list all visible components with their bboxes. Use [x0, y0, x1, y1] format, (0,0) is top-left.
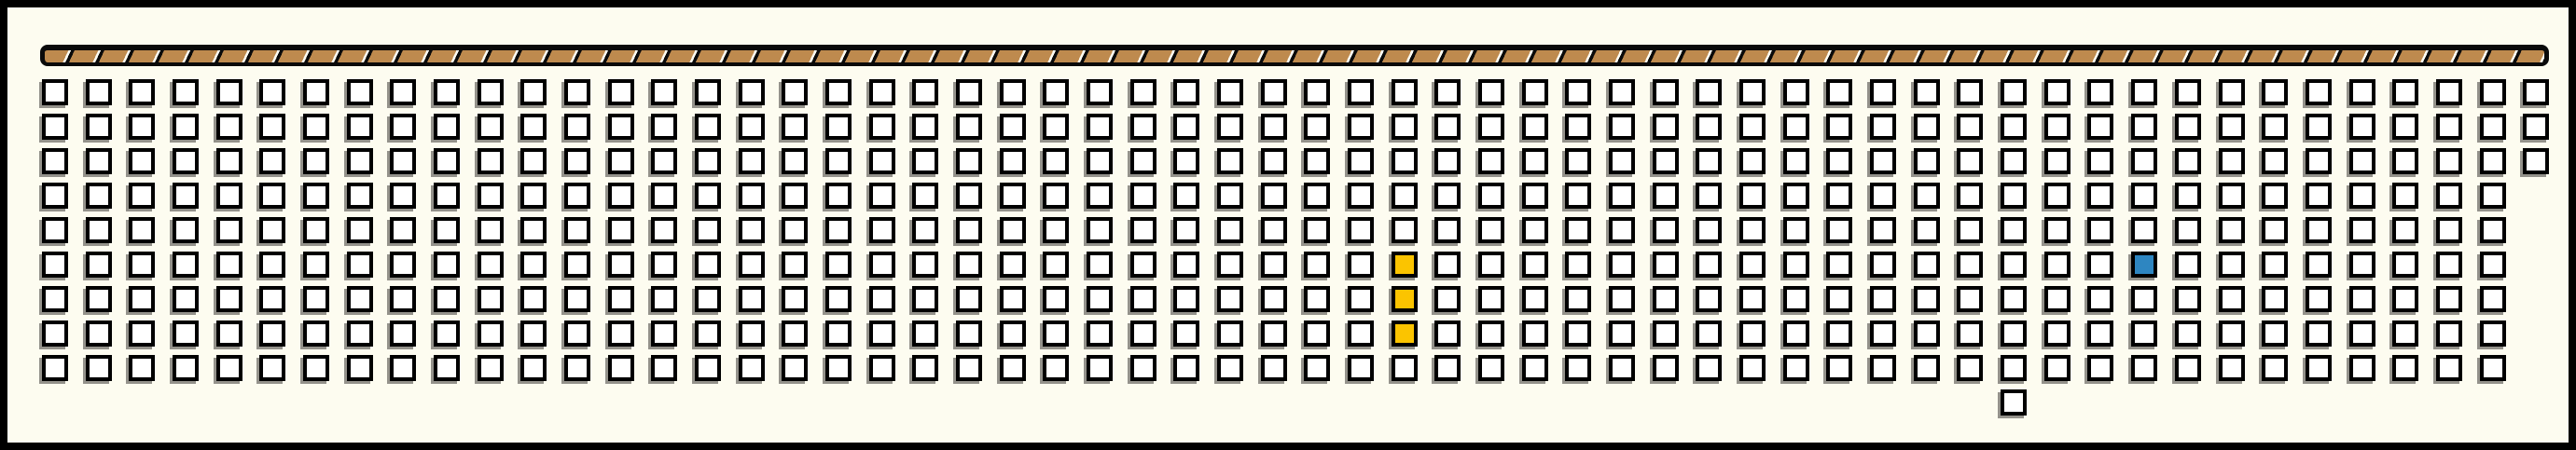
grid-cell[interactable]: [1783, 217, 1809, 243]
grid-cell[interactable]: [695, 148, 721, 174]
grid-cell[interactable]: [1217, 148, 1243, 174]
grid-cell[interactable]: [1434, 183, 1461, 209]
grid-cell[interactable]: [739, 114, 765, 140]
grid-cell[interactable]: [1739, 148, 1766, 174]
grid-cell-highlighted-blue[interactable]: [2131, 252, 2157, 278]
grid-cell[interactable]: [259, 183, 285, 209]
grid-cell[interactable]: [1478, 355, 1504, 381]
grid-cell[interactable]: [129, 355, 155, 381]
grid-cell[interactable]: [390, 217, 416, 243]
grid-cell[interactable]: [1304, 355, 1330, 381]
grid-cell[interactable]: [608, 217, 634, 243]
grid-cell[interactable]: [2306, 252, 2332, 278]
grid-cell[interactable]: [1565, 355, 1591, 381]
grid-cell-selected-yellow[interactable]: [1392, 286, 1418, 312]
grid-cell[interactable]: [2001, 217, 2027, 243]
grid-cell[interactable]: [2480, 183, 2506, 209]
grid-cell[interactable]: [956, 217, 982, 243]
grid-cell[interactable]: [1261, 252, 1287, 278]
grid-cell[interactable]: [1696, 183, 1722, 209]
grid-cell[interactable]: [2262, 286, 2288, 312]
grid-cell[interactable]: [1826, 320, 1852, 347]
grid-cell[interactable]: [2306, 114, 2332, 140]
grid-cell[interactable]: [2480, 217, 2506, 243]
grid-cell[interactable]: [2436, 183, 2462, 209]
grid-cell[interactable]: [1609, 114, 1635, 140]
grid-cell[interactable]: [1565, 286, 1591, 312]
grid-cell[interactable]: [1000, 252, 1026, 278]
grid-cell[interactable]: [1826, 355, 1852, 381]
grid-cell[interactable]: [1434, 114, 1461, 140]
grid-cell[interactable]: [520, 217, 547, 243]
grid-cell[interactable]: [2044, 79, 2070, 105]
grid-cell[interactable]: [869, 355, 895, 381]
grid-cell[interactable]: [1957, 217, 1983, 243]
grid-cell[interactable]: [1870, 286, 1896, 312]
grid-cell[interactable]: [2131, 183, 2157, 209]
grid-cell[interactable]: [1348, 183, 1374, 209]
grid-cell[interactable]: [434, 286, 460, 312]
grid-cell[interactable]: [825, 148, 852, 174]
grid-cell[interactable]: [1870, 217, 1896, 243]
grid-cell[interactable]: [869, 286, 895, 312]
grid-cell[interactable]: [42, 148, 68, 174]
grid-cell[interactable]: [2306, 355, 2332, 381]
grid-cell[interactable]: [1957, 286, 1983, 312]
grid-cell[interactable]: [2392, 148, 2418, 174]
grid-cell[interactable]: [1696, 355, 1722, 381]
grid-cell[interactable]: [1434, 217, 1461, 243]
grid-cell[interactable]: [1478, 217, 1504, 243]
grid-cell[interactable]: [1565, 148, 1591, 174]
grid-cell[interactable]: [1826, 286, 1852, 312]
grid-cell[interactable]: [2175, 217, 2201, 243]
grid-cell[interactable]: [1130, 320, 1156, 347]
grid-cell[interactable]: [2262, 183, 2288, 209]
grid-cell[interactable]: [956, 183, 982, 209]
grid-cell[interactable]: [1783, 355, 1809, 381]
grid-cell[interactable]: [2262, 217, 2288, 243]
grid-cell[interactable]: [2436, 320, 2462, 347]
grid-cell[interactable]: [347, 114, 373, 140]
grid-cell[interactable]: [1348, 355, 1374, 381]
grid-cell[interactable]: [2087, 79, 2113, 105]
grid-cell[interactable]: [2349, 320, 2375, 347]
grid-cell[interactable]: [1609, 355, 1635, 381]
grid-cell[interactable]: [1304, 252, 1330, 278]
grid-cell[interactable]: [2349, 286, 2375, 312]
grid-cell[interactable]: [782, 79, 808, 105]
grid-cell[interactable]: [1217, 183, 1243, 209]
grid-cell[interactable]: [347, 355, 373, 381]
grid-cell[interactable]: [912, 217, 938, 243]
grid-cell[interactable]: [869, 79, 895, 105]
grid-cell[interactable]: [1130, 183, 1156, 209]
grid-cell[interactable]: [608, 114, 634, 140]
grid-cell[interactable]: [739, 217, 765, 243]
grid-cell[interactable]: [1130, 217, 1156, 243]
grid-cell[interactable]: [782, 183, 808, 209]
grid-cell[interactable]: [956, 148, 982, 174]
grid-cell[interactable]: [1522, 252, 1548, 278]
grid-cell[interactable]: [1653, 252, 1679, 278]
grid-cell[interactable]: [1304, 114, 1330, 140]
grid-cell[interactable]: [1957, 114, 1983, 140]
grid-cell[interactable]: [129, 148, 155, 174]
grid-cell[interactable]: [303, 355, 329, 381]
grid-cell[interactable]: [2392, 79, 2418, 105]
grid-cell[interactable]: [173, 320, 199, 347]
grid-cell[interactable]: [1130, 355, 1156, 381]
grid-cell[interactable]: [1261, 79, 1287, 105]
grid-cell[interactable]: [1304, 217, 1330, 243]
grid-cell[interactable]: [1739, 217, 1766, 243]
grid-cell[interactable]: [1914, 183, 1940, 209]
grid-cell[interactable]: [216, 183, 242, 209]
grid-cell[interactable]: [739, 355, 765, 381]
grid-cell[interactable]: [1173, 217, 1199, 243]
grid-cell[interactable]: [2087, 320, 2113, 347]
grid-cell[interactable]: [86, 217, 112, 243]
grid-cell[interactable]: [1522, 286, 1548, 312]
grid-cell[interactable]: [1087, 286, 1113, 312]
grid-cell[interactable]: [2001, 389, 2027, 416]
grid-cell[interactable]: [1348, 217, 1374, 243]
grid-cell[interactable]: [1653, 217, 1679, 243]
grid-cell[interactable]: [1739, 183, 1766, 209]
grid-cell[interactable]: [86, 114, 112, 140]
grid-cell[interactable]: [216, 320, 242, 347]
grid-cell[interactable]: [608, 320, 634, 347]
grid-cell[interactable]: [1957, 355, 1983, 381]
grid-cell[interactable]: [1304, 320, 1330, 347]
grid-cell[interactable]: [303, 286, 329, 312]
grid-cell[interactable]: [1217, 79, 1243, 105]
grid-cell[interactable]: [695, 183, 721, 209]
grid-cell[interactable]: [2480, 114, 2506, 140]
grid-cell[interactable]: [42, 114, 68, 140]
grid-cell[interactable]: [1043, 320, 1069, 347]
grid-cell[interactable]: [434, 355, 460, 381]
grid-cell[interactable]: [390, 148, 416, 174]
grid-cell[interactable]: [869, 148, 895, 174]
grid-cell[interactable]: [129, 320, 155, 347]
grid-cell[interactable]: [2306, 286, 2332, 312]
grid-cell[interactable]: [478, 183, 504, 209]
grid-cell[interactable]: [1478, 252, 1504, 278]
grid-cell[interactable]: [651, 286, 677, 312]
grid-cell[interactable]: [1478, 148, 1504, 174]
grid-cell[interactable]: [956, 320, 982, 347]
grid-cell[interactable]: [956, 355, 982, 381]
grid-cell[interactable]: [1914, 286, 1940, 312]
grid-cell-selected-yellow[interactable]: [1392, 252, 1418, 278]
grid-cell[interactable]: [1653, 355, 1679, 381]
grid-cell[interactable]: [1522, 79, 1548, 105]
grid-cell[interactable]: [1043, 217, 1069, 243]
grid-cell[interactable]: [2523, 114, 2549, 140]
grid-cell[interactable]: [434, 114, 460, 140]
grid-cell[interactable]: [1522, 148, 1548, 174]
grid-cell[interactable]: [869, 252, 895, 278]
grid-cell[interactable]: [216, 114, 242, 140]
grid-cell[interactable]: [1087, 355, 1113, 381]
grid-cell[interactable]: [956, 79, 982, 105]
grid-cell[interactable]: [564, 355, 590, 381]
grid-cell[interactable]: [2044, 183, 2070, 209]
grid-cell[interactable]: [1087, 79, 1113, 105]
grid-cell[interactable]: [825, 252, 852, 278]
grid-cell[interactable]: [173, 252, 199, 278]
grid-cell[interactable]: [434, 183, 460, 209]
grid-cell[interactable]: [1392, 217, 1418, 243]
grid-cell[interactable]: [173, 217, 199, 243]
grid-cell[interactable]: [1783, 320, 1809, 347]
grid-cell[interactable]: [1957, 320, 1983, 347]
grid-cell[interactable]: [1609, 183, 1635, 209]
grid-cell[interactable]: [825, 79, 852, 105]
grid-cell-selected-yellow[interactable]: [1392, 320, 1418, 347]
grid-cell[interactable]: [1087, 320, 1113, 347]
grid-cell[interactable]: [2001, 114, 2027, 140]
grid-cell[interactable]: [1434, 355, 1461, 381]
grid-cell[interactable]: [1696, 217, 1722, 243]
grid-cell[interactable]: [2175, 252, 2201, 278]
grid-cell[interactable]: [434, 217, 460, 243]
grid-cell[interactable]: [1261, 286, 1287, 312]
grid-cell[interactable]: [564, 286, 590, 312]
grid-cell[interactable]: [2131, 320, 2157, 347]
grid-cell[interactable]: [1304, 183, 1330, 209]
grid-cell[interactable]: [1261, 114, 1287, 140]
grid-cell[interactable]: [1434, 320, 1461, 347]
grid-cell[interactable]: [1348, 252, 1374, 278]
grid-cell[interactable]: [2306, 148, 2332, 174]
grid-cell[interactable]: [651, 355, 677, 381]
grid-cell[interactable]: [1217, 114, 1243, 140]
grid-cell[interactable]: [390, 286, 416, 312]
grid-cell[interactable]: [2480, 286, 2506, 312]
grid-cell[interactable]: [1478, 320, 1504, 347]
grid-cell[interactable]: [1826, 148, 1852, 174]
grid-cell[interactable]: [739, 286, 765, 312]
grid-cell[interactable]: [1870, 114, 1896, 140]
grid-cell[interactable]: [216, 217, 242, 243]
grid-cell[interactable]: [216, 148, 242, 174]
grid-cell[interactable]: [2349, 252, 2375, 278]
grid-cell[interactable]: [129, 252, 155, 278]
grid-cell[interactable]: [1914, 217, 1940, 243]
grid-cell[interactable]: [303, 183, 329, 209]
grid-cell[interactable]: [651, 252, 677, 278]
grid-cell[interactable]: [434, 252, 460, 278]
grid-cell[interactable]: [2001, 79, 2027, 105]
grid-cell[interactable]: [1653, 114, 1679, 140]
grid-cell[interactable]: [1783, 114, 1809, 140]
grid-cell[interactable]: [2306, 320, 2332, 347]
grid-cell[interactable]: [86, 286, 112, 312]
grid-cell[interactable]: [390, 320, 416, 347]
grid-cell[interactable]: [825, 320, 852, 347]
grid-cell[interactable]: [2306, 183, 2332, 209]
grid-cell[interactable]: [2044, 217, 2070, 243]
grid-cell[interactable]: [2306, 217, 2332, 243]
grid-cell[interactable]: [782, 286, 808, 312]
grid-cell[interactable]: [520, 79, 547, 105]
grid-cell[interactable]: [695, 355, 721, 381]
grid-cell[interactable]: [1173, 148, 1199, 174]
grid-cell[interactable]: [1653, 286, 1679, 312]
grid-cell[interactable]: [1565, 320, 1591, 347]
grid-cell[interactable]: [912, 320, 938, 347]
grid-cell[interactable]: [2262, 355, 2288, 381]
grid-cell[interactable]: [1261, 320, 1287, 347]
grid-cell[interactable]: [956, 252, 982, 278]
grid-cell[interactable]: [912, 114, 938, 140]
grid-cell[interactable]: [1348, 148, 1374, 174]
grid-cell[interactable]: [1130, 148, 1156, 174]
grid-cell[interactable]: [520, 286, 547, 312]
grid-cell[interactable]: [2001, 355, 2027, 381]
grid-cell[interactable]: [1304, 148, 1330, 174]
grid-cell[interactable]: [1348, 286, 1374, 312]
grid-cell[interactable]: [1870, 355, 1896, 381]
grid-cell[interactable]: [520, 183, 547, 209]
grid-cell[interactable]: [1739, 320, 1766, 347]
grid-cell[interactable]: [1870, 183, 1896, 209]
grid-cell[interactable]: [782, 355, 808, 381]
grid-cell[interactable]: [695, 114, 721, 140]
grid-cell[interactable]: [2262, 114, 2288, 140]
grid-cell[interactable]: [956, 286, 982, 312]
grid-cell[interactable]: [2349, 79, 2375, 105]
grid-cell[interactable]: [1000, 79, 1026, 105]
grid-cell[interactable]: [912, 183, 938, 209]
grid-cell[interactable]: [1304, 286, 1330, 312]
grid-cell[interactable]: [1304, 79, 1330, 105]
grid-cell[interactable]: [2087, 217, 2113, 243]
grid-cell[interactable]: [695, 252, 721, 278]
grid-cell[interactable]: [42, 286, 68, 312]
grid-cell[interactable]: [2001, 320, 2027, 347]
grid-cell[interactable]: [695, 286, 721, 312]
grid-cell[interactable]: [651, 148, 677, 174]
grid-cell[interactable]: [2392, 183, 2418, 209]
grid-cell[interactable]: [2349, 217, 2375, 243]
grid-cell[interactable]: [390, 183, 416, 209]
grid-cell[interactable]: [1217, 320, 1243, 347]
grid-cell[interactable]: [1130, 252, 1156, 278]
grid-cell[interactable]: [1173, 286, 1199, 312]
grid-cell[interactable]: [1043, 355, 1069, 381]
grid-cell[interactable]: [1130, 286, 1156, 312]
grid-cell[interactable]: [1826, 79, 1852, 105]
grid-cell[interactable]: [2175, 79, 2201, 105]
grid-cell[interactable]: [2392, 252, 2418, 278]
grid-cell[interactable]: [1609, 217, 1635, 243]
grid-cell[interactable]: [2436, 79, 2462, 105]
grid-cell[interactable]: [1653, 320, 1679, 347]
grid-cell[interactable]: [1565, 114, 1591, 140]
grid-cell[interactable]: [2044, 320, 2070, 347]
grid-cell[interactable]: [608, 148, 634, 174]
grid-cell[interactable]: [564, 79, 590, 105]
grid-cell[interactable]: [1522, 320, 1548, 347]
grid-cell[interactable]: [2392, 320, 2418, 347]
grid-cell[interactable]: [2219, 355, 2245, 381]
grid-cell[interactable]: [478, 114, 504, 140]
grid-cell[interactable]: [259, 320, 285, 347]
grid-cell[interactable]: [478, 355, 504, 381]
grid-cell[interactable]: [520, 320, 547, 347]
grid-cell[interactable]: [825, 183, 852, 209]
grid-cell[interactable]: [1173, 252, 1199, 278]
grid-cell[interactable]: [739, 183, 765, 209]
grid-cell[interactable]: [1783, 183, 1809, 209]
grid-cell[interactable]: [1043, 79, 1069, 105]
grid-cell[interactable]: [2436, 286, 2462, 312]
grid-cell[interactable]: [651, 79, 677, 105]
grid-cell[interactable]: [2087, 183, 2113, 209]
grid-cell[interactable]: [303, 114, 329, 140]
grid-cell[interactable]: [1696, 252, 1722, 278]
grid-cell[interactable]: [825, 286, 852, 312]
grid-cell[interactable]: [608, 183, 634, 209]
grid-cell[interactable]: [1739, 114, 1766, 140]
grid-cell[interactable]: [1348, 320, 1374, 347]
grid-cell[interactable]: [1130, 114, 1156, 140]
grid-cell[interactable]: [1173, 183, 1199, 209]
grid-cell[interactable]: [173, 79, 199, 105]
grid-cell[interactable]: [1478, 79, 1504, 105]
grid-cell[interactable]: [1957, 148, 1983, 174]
grid-cell[interactable]: [2001, 252, 2027, 278]
grid-cell[interactable]: [1000, 355, 1026, 381]
grid-cell[interactable]: [86, 79, 112, 105]
grid-cell[interactable]: [259, 355, 285, 381]
grid-cell[interactable]: [912, 148, 938, 174]
grid-cell[interactable]: [1087, 148, 1113, 174]
grid-cell[interactable]: [259, 252, 285, 278]
grid-cell[interactable]: [259, 79, 285, 105]
grid-cell[interactable]: [1653, 148, 1679, 174]
grid-cell[interactable]: [1739, 286, 1766, 312]
grid-cell[interactable]: [2044, 286, 2070, 312]
grid-cell[interactable]: [2349, 355, 2375, 381]
grid-cell[interactable]: [1261, 217, 1287, 243]
grid-cell[interactable]: [1043, 148, 1069, 174]
grid-cell[interactable]: [651, 114, 677, 140]
grid-cell[interactable]: [564, 148, 590, 174]
grid-cell[interactable]: [129, 217, 155, 243]
grid-cell[interactable]: [1609, 320, 1635, 347]
grid-cell[interactable]: [1522, 114, 1548, 140]
grid-cell[interactable]: [1739, 79, 1766, 105]
grid-cell[interactable]: [2087, 355, 2113, 381]
grid-cell[interactable]: [2523, 79, 2549, 105]
grid-cell[interactable]: [2175, 286, 2201, 312]
grid-cell[interactable]: [303, 320, 329, 347]
grid-cell[interactable]: [2087, 114, 2113, 140]
grid-cell[interactable]: [1914, 320, 1940, 347]
grid-cell[interactable]: [2219, 79, 2245, 105]
grid-cell[interactable]: [912, 286, 938, 312]
grid-cell[interactable]: [869, 114, 895, 140]
grid-cell[interactable]: [2044, 114, 2070, 140]
grid-cell[interactable]: [259, 217, 285, 243]
grid-cell[interactable]: [1565, 252, 1591, 278]
grid-cell[interactable]: [434, 79, 460, 105]
